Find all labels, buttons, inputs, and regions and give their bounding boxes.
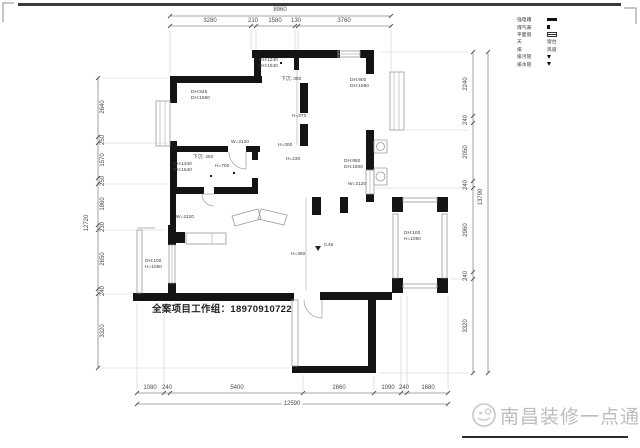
room-label: DH:1240 DH:1540 <box>259 58 278 70</box>
dim-value: 2650 <box>100 252 106 265</box>
watermark-logo-icon <box>470 401 498 429</box>
dim-value: 130 <box>291 18 301 24</box>
legend-label: 强电箱 <box>517 16 543 23</box>
dim-value: 230 <box>100 222 106 232</box>
watermark: 南昌装修一点通 <box>462 398 630 440</box>
room-label: 下沉: 300 <box>281 77 301 83</box>
dim-value: 3280 <box>203 18 216 24</box>
watermark-rule <box>462 436 628 438</box>
legend-value: 窗台 <box>547 38 557 45</box>
elevation-tag: 0.45 <box>324 243 333 249</box>
dim-value: 240 <box>463 180 469 190</box>
drain-symbol <box>547 62 551 66</box>
room-label: DH:900 DH:1560 <box>350 78 369 90</box>
room-label: DH:100 H=1060 <box>404 231 421 243</box>
dimension-lines <box>98 16 488 404</box>
dim-value: 240 <box>463 271 469 281</box>
legend-row: 天 窗台 <box>517 39 603 44</box>
dim-value: 1680 <box>421 385 434 391</box>
room-label: DH:945 DH:1560 <box>191 90 210 102</box>
floor-plan-sheet: 8960 3280 210 1580 130 3760 1080 240 540… <box>0 0 640 448</box>
width-tag: W=2120 <box>176 215 194 221</box>
room-label: 下沉: 450 <box>193 155 213 161</box>
legend-row: 平面窗 <box>517 32 603 37</box>
dim-value: 250 <box>100 176 106 186</box>
legend-label: 煤气表 <box>517 24 543 31</box>
legend-row: 强电箱 <box>517 17 603 22</box>
dim-value: 2960 <box>463 223 469 236</box>
room-label: DH:100 H=1050 <box>145 259 162 271</box>
dim-total-top: 8960 <box>273 7 286 13</box>
height-tag: H=700 <box>215 164 229 170</box>
width-tag: W=2120 <box>231 140 249 146</box>
dim-value: 210 <box>248 18 258 24</box>
legend-row: 排 风道 <box>517 47 603 52</box>
watermark-text: 南昌装修一点通 <box>500 402 640 429</box>
legend-label: 天 <box>517 38 543 45</box>
legend: 强电箱 煤气表 平面窗 天 窗台 排 风道 排污管 排水管 <box>517 17 603 67</box>
height-tag: H=300 <box>278 143 292 149</box>
dim-value: 240 <box>162 385 172 391</box>
legend-label: 平面窗 <box>517 31 543 38</box>
dim-value: 3320 <box>100 324 106 337</box>
dim-value: 240 <box>100 286 106 296</box>
extension-lines <box>102 30 469 390</box>
dim-value: 1570 <box>100 153 106 166</box>
dim-value: 2240 <box>463 77 469 90</box>
room-label: DH:950 DH:1500 <box>344 159 363 171</box>
height-tag: H=360 <box>291 252 305 258</box>
contact-text: 全案项目工作组：18970910722 <box>152 301 292 315</box>
floor-plan-drawing <box>0 0 640 448</box>
legend-label: 排污管 <box>517 53 543 60</box>
gas-meter-symbol <box>547 25 550 28</box>
legend-row: 煤气表 <box>517 24 603 29</box>
dim-value: 2640 <box>100 100 106 113</box>
legend-row: 排污管 <box>517 54 603 59</box>
dim-value: 1580 <box>268 18 281 24</box>
drain-symbol <box>547 55 551 59</box>
dim-value: 3320 <box>463 319 469 332</box>
dimension-ticks <box>96 14 490 406</box>
dim-value: 2860 <box>332 385 345 391</box>
dim-value: 3760 <box>337 18 350 24</box>
room-label: DH:1340 DH:1540 <box>173 162 192 174</box>
dim-value: 2050 <box>463 145 469 158</box>
height-tag: H=370 <box>292 114 306 120</box>
dim-total-right: 13790 <box>478 189 484 206</box>
dim-total-left: 12720 <box>84 215 90 232</box>
legend-label: 排 <box>517 46 543 53</box>
height-tag: H=230 <box>286 157 300 163</box>
power-box-symbol <box>547 18 557 21</box>
window-symbol <box>547 32 557 38</box>
dim-value: 240 <box>463 115 469 125</box>
width-tag: W=2120 <box>348 182 366 188</box>
dim-value: 1080 <box>143 385 156 391</box>
dim-total-bottom: 12590 <box>282 401 303 407</box>
dim-value: 1090 <box>381 385 394 391</box>
legend-row: 排水管 <box>517 61 603 66</box>
legend-label: 排水管 <box>517 61 543 68</box>
dim-value: 250 <box>100 135 106 145</box>
legend-value: 风道 <box>547 46 557 53</box>
dim-value: 5400 <box>230 385 243 391</box>
dim-value: 240 <box>399 385 409 391</box>
dim-value: 1860 <box>100 197 106 210</box>
